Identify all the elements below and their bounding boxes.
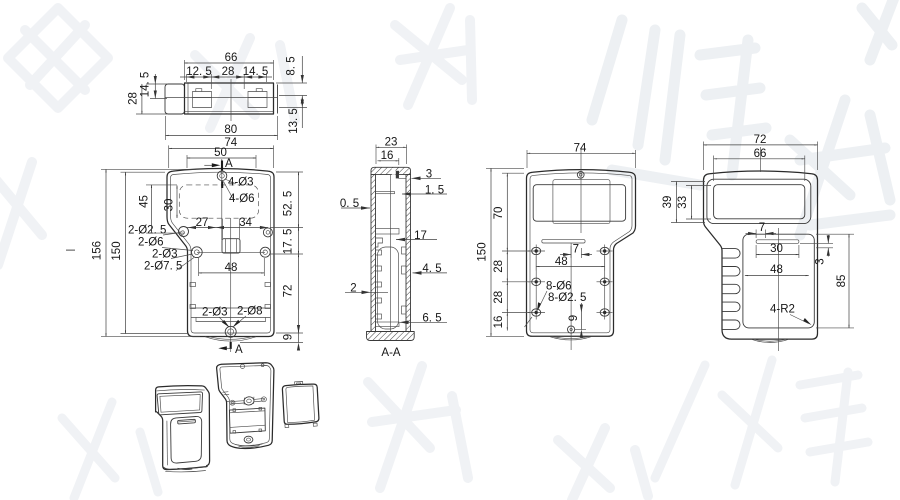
svg-text:A-A: A-A — [381, 347, 401, 359]
svg-text:17. 5: 17. 5 — [283, 229, 295, 255]
svg-text:28: 28 — [222, 66, 235, 78]
svg-text:34: 34 — [239, 217, 252, 229]
svg-text:16: 16 — [493, 316, 505, 329]
svg-text:14. 5: 14. 5 — [140, 72, 152, 98]
svg-text:30: 30 — [164, 199, 176, 212]
svg-text:39: 39 — [662, 196, 674, 209]
svg-text:8-Ø2. 5: 8-Ø2. 5 — [548, 292, 586, 304]
svg-text:45: 45 — [139, 195, 151, 208]
svg-text:2-Ø2. 5: 2-Ø2. 5 — [128, 225, 166, 237]
svg-text:0. 5: 0. 5 — [340, 198, 359, 210]
svg-text:28: 28 — [128, 92, 140, 105]
svg-text:2-Ø3: 2-Ø3 — [152, 248, 178, 260]
svg-text:17: 17 — [414, 230, 427, 242]
svg-text:14. 5: 14. 5 — [243, 66, 269, 78]
svg-text:2: 2 — [350, 282, 356, 294]
svg-text:8-Ø6: 8-Ø6 — [546, 280, 572, 292]
svg-text:156: 156 — [91, 241, 103, 260]
svg-text:2-Ø6: 2-Ø6 — [138, 237, 164, 249]
svg-text:52. 5: 52. 5 — [283, 191, 295, 217]
svg-text:72: 72 — [754, 134, 767, 146]
svg-text:9: 9 — [568, 315, 580, 321]
svg-text:4-Ø3: 4-Ø3 — [228, 176, 254, 188]
svg-text:48: 48 — [225, 262, 238, 274]
svg-text:3: 3 — [426, 168, 432, 180]
svg-text:28: 28 — [493, 291, 505, 304]
svg-text:66: 66 — [225, 52, 238, 64]
svg-text:48: 48 — [555, 256, 568, 268]
svg-text:2-Ø3: 2-Ø3 — [202, 307, 228, 319]
svg-text:150: 150 — [477, 242, 489, 261]
svg-text:85: 85 — [836, 275, 848, 288]
svg-text:80: 80 — [224, 124, 237, 136]
svg-text:16: 16 — [381, 150, 394, 162]
svg-text:A: A — [235, 344, 243, 356]
svg-text:12. 5: 12. 5 — [186, 66, 212, 78]
svg-text:33: 33 — [677, 196, 689, 209]
svg-text:A: A — [225, 158, 233, 170]
svg-text:66: 66 — [754, 148, 767, 160]
svg-text:48: 48 — [770, 264, 783, 276]
svg-text:2-Ø8: 2-Ø8 — [237, 306, 263, 318]
svg-text:70: 70 — [493, 207, 505, 220]
svg-text:1. 5: 1. 5 — [425, 185, 444, 197]
svg-text:3: 3 — [815, 258, 827, 264]
svg-text:9: 9 — [283, 334, 295, 340]
svg-text:28: 28 — [493, 260, 505, 273]
svg-text:8. 5: 8. 5 — [286, 56, 298, 75]
svg-text:4-Ø6: 4-Ø6 — [229, 193, 255, 205]
svg-text:4. 5: 4. 5 — [422, 263, 441, 275]
svg-text:30: 30 — [770, 243, 783, 255]
svg-text:2-Ø7. 5: 2-Ø7. 5 — [144, 261, 182, 273]
svg-text:74: 74 — [574, 142, 587, 154]
svg-text:27: 27 — [196, 217, 209, 229]
svg-text:50: 50 — [214, 147, 227, 159]
svg-text:7: 7 — [573, 243, 579, 255]
svg-text:6. 5: 6. 5 — [422, 313, 441, 325]
svg-text:7: 7 — [759, 222, 765, 234]
svg-text:4-R2: 4-R2 — [770, 304, 795, 316]
svg-text:23: 23 — [385, 136, 398, 148]
svg-text:72: 72 — [283, 285, 295, 298]
svg-text:13. 5: 13. 5 — [288, 108, 300, 134]
svg-text:150: 150 — [111, 241, 123, 260]
